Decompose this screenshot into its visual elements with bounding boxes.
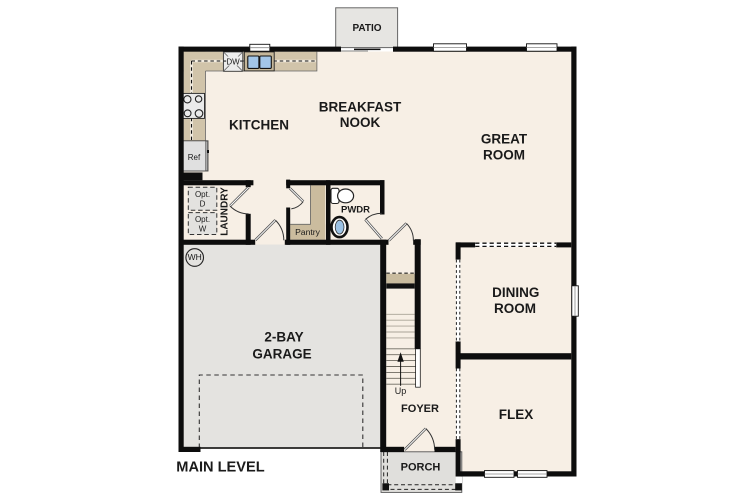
svg-text:PORCH: PORCH <box>401 462 441 474</box>
svg-text:GARAGE: GARAGE <box>252 347 311 362</box>
svg-text:PWDR: PWDR <box>341 205 370 216</box>
svg-text:DINING: DINING <box>492 285 539 300</box>
svg-text:W: W <box>199 224 207 233</box>
svg-text:BREAKFAST: BREAKFAST <box>319 100 402 115</box>
svg-text:KITCHEN: KITCHEN <box>229 118 289 133</box>
svg-text:FOYER: FOYER <box>401 403 439 415</box>
svg-text:2-BAY: 2-BAY <box>264 330 303 345</box>
svg-text:MAIN LEVEL: MAIN LEVEL <box>176 460 264 476</box>
svg-text:PATIO: PATIO <box>352 23 381 34</box>
svg-text:NOOK: NOOK <box>340 115 381 130</box>
svg-text:WH: WH <box>188 252 202 262</box>
svg-text:Ref: Ref <box>188 153 201 162</box>
svg-text:LAUNDRY: LAUNDRY <box>220 187 231 236</box>
svg-text:ROOM: ROOM <box>494 301 536 316</box>
svg-text:Opt.: Opt. <box>195 215 210 224</box>
svg-text:FLEX: FLEX <box>499 407 534 422</box>
svg-text:GREAT: GREAT <box>481 132 528 147</box>
svg-text:Pantry: Pantry <box>295 227 321 237</box>
svg-text:D: D <box>200 200 206 209</box>
svg-text:DW: DW <box>226 58 240 67</box>
svg-text:Up: Up <box>395 386 407 396</box>
svg-text:Opt.: Opt. <box>195 190 210 199</box>
svg-text:ROOM: ROOM <box>483 148 525 163</box>
